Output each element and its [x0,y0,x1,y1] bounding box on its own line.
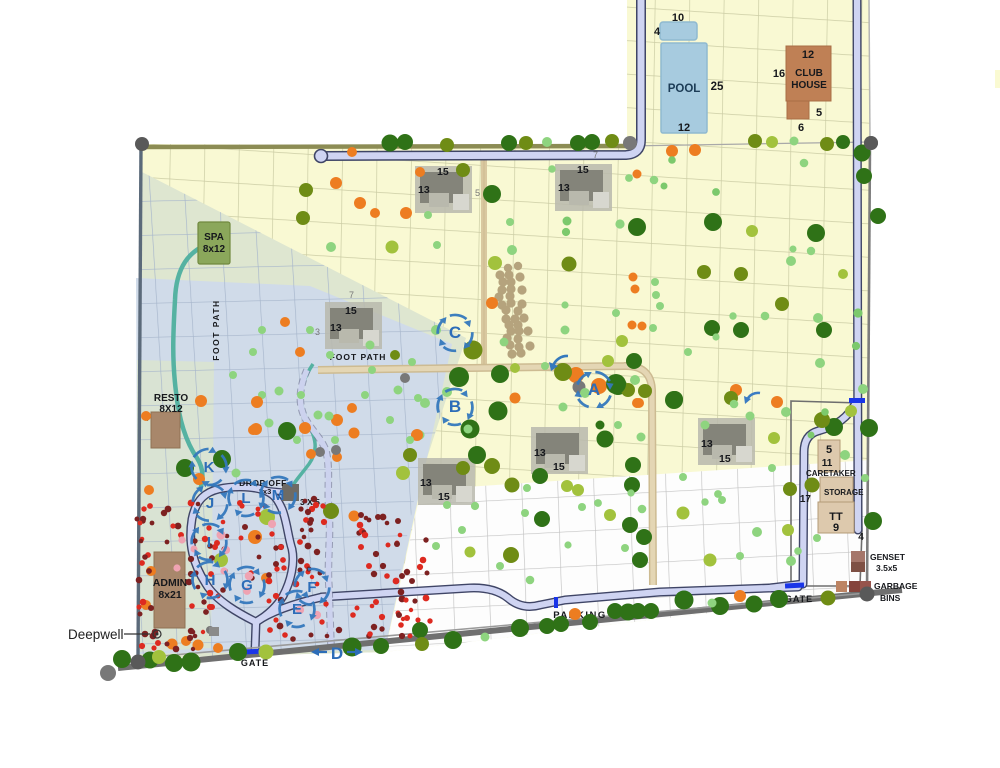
svg-text:Deepwell: Deepwell [68,627,124,642]
svg-text:17: 17 [800,494,812,505]
svg-text:GATE: GATE [241,658,269,668]
svg-text:13: 13 [534,447,546,459]
svg-text:RESTO: RESTO [154,393,188,404]
svg-text:13: 13 [420,477,432,489]
svg-text:7: 7 [593,150,598,160]
svg-text:25: 25 [711,81,724,93]
svg-text:3: 3 [315,327,320,337]
svg-text:8x12: 8x12 [203,244,226,255]
svg-text:STORAGE: STORAGE [824,488,864,497]
svg-text:10: 10 [672,12,684,24]
svg-text:13: 13 [418,184,430,196]
svg-text:9: 9 [833,522,839,534]
svg-text:5: 5 [826,444,832,456]
svg-text:8X12: 8X12 [159,404,183,415]
svg-text:15: 15 [719,453,731,465]
svg-text:FOOT PATH: FOOT PATH [211,299,221,360]
svg-text:4: 4 [858,532,864,543]
svg-text:5: 5 [475,188,480,198]
svg-text:J: J [206,495,214,512]
svg-text:HOUSE: HOUSE [791,80,827,91]
svg-text:4: 4 [654,26,661,38]
svg-text:CLUB: CLUB [795,68,823,79]
svg-text:E: E [292,601,302,618]
svg-text:D: D [331,644,343,663]
svg-text:POOL: POOL [668,83,701,95]
svg-text:15: 15 [437,166,449,178]
svg-text:K: K [204,459,215,476]
svg-text:A: A [588,380,600,399]
svg-text:11: 11 [822,458,833,469]
svg-text:H: H [205,572,216,589]
svg-text:ADMIN: ADMIN [153,577,187,589]
svg-text:F: F [307,579,316,596]
svg-text:BINS: BINS [880,593,901,603]
svg-text:13: 13 [701,438,713,450]
svg-text:GARBAGE: GARBAGE [874,581,918,591]
svg-text:GATE: GATE [785,594,813,604]
svg-text:5: 5 [816,107,822,119]
svg-text:12: 12 [678,122,690,134]
svg-text:B: B [449,397,461,416]
svg-text:SPA: SPA [204,232,224,243]
svg-text:G: G [241,577,253,594]
svg-text:8x21: 8x21 [158,589,182,601]
svg-text:12: 12 [802,49,814,61]
svg-text:C: C [449,323,461,342]
svg-text:L: L [241,490,250,507]
svg-text:13: 13 [558,182,570,194]
svg-text:16: 16 [773,68,785,80]
svg-text:13: 13 [330,322,342,334]
svg-text:I: I [207,534,211,551]
svg-text:FOOT PATH: FOOT PATH [330,352,387,362]
svg-text:7: 7 [349,290,354,300]
svg-text:M: M [272,487,285,504]
svg-text:6: 6 [798,122,804,134]
svg-text:15: 15 [553,461,565,473]
svg-text:15: 15 [577,164,589,176]
svg-text:15: 15 [345,305,357,317]
svg-text:GENSET: GENSET [870,552,906,562]
svg-text:3.5x5: 3.5x5 [876,563,898,573]
